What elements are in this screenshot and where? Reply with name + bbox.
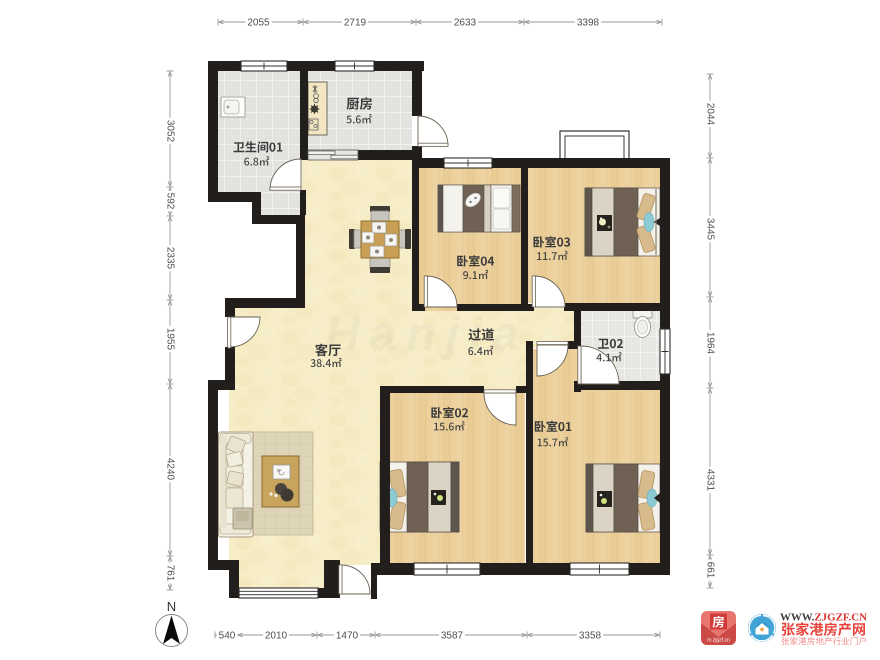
svg-text:Hanjia: Hanjia (325, 308, 529, 361)
svg-text:1955: 1955 (165, 328, 176, 351)
svg-text:3398: 3398 (577, 18, 600, 29)
svg-text:592: 592 (165, 193, 176, 210)
svg-text:N: N (167, 599, 176, 614)
svg-text:2055: 2055 (247, 18, 270, 29)
svg-text:3445: 3445 (705, 218, 716, 241)
svg-text:761: 761 (165, 565, 176, 582)
svg-text:WWW.ZJGZF.CN: WWW.ZJGZF.CN (780, 612, 867, 624)
svg-text:2044: 2044 (705, 103, 716, 126)
svg-text:2335: 2335 (165, 247, 176, 270)
svg-text:m.zjgzf.cn: m.zjgzf.cn (707, 638, 730, 644)
svg-text:661: 661 (705, 562, 716, 579)
svg-text:540: 540 (219, 631, 236, 642)
svg-text:3587: 3587 (441, 631, 464, 642)
svg-text:1470: 1470 (336, 631, 359, 642)
svg-text:1964: 1964 (705, 332, 716, 355)
svg-text:2633: 2633 (454, 18, 477, 29)
svg-text:2719: 2719 (344, 18, 367, 29)
svg-text:3052: 3052 (165, 120, 176, 143)
svg-text:2010: 2010 (265, 631, 288, 642)
svg-text:3358: 3358 (579, 631, 602, 642)
svg-text:4331: 4331 (705, 469, 716, 492)
svg-text:4240: 4240 (165, 458, 176, 481)
